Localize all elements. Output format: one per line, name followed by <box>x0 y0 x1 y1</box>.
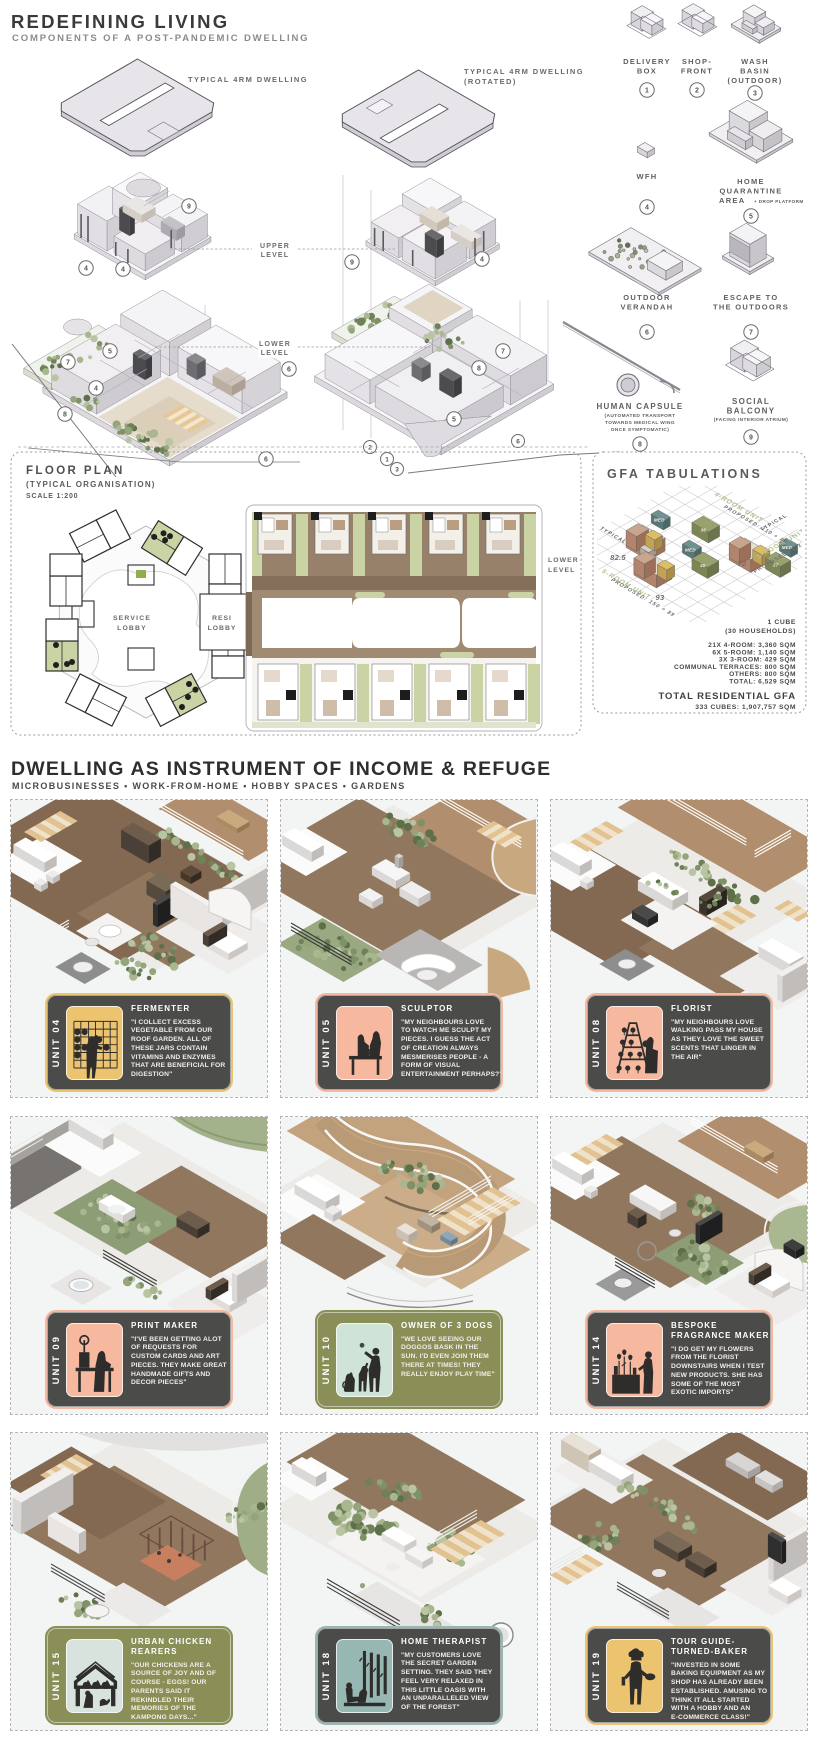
svg-text:TYPICAL 4RM DWELLING: TYPICAL 4RM DWELLING <box>464 67 584 76</box>
svg-text:(TYPICAL ORGANISATION): (TYPICAL ORGANISATION) <box>26 480 156 489</box>
svg-text:9: 9 <box>749 435 753 442</box>
svg-text:OUTDOOR: OUTDOOR <box>623 293 670 302</box>
svg-text:WASH: WASH <box>741 57 769 66</box>
svg-text:9: 9 <box>187 204 191 211</box>
svg-text:THE OUTDOORS: THE OUTDOORS <box>713 303 789 312</box>
svg-text:93: 93 <box>656 593 665 602</box>
svg-text:2: 2 <box>695 88 699 95</box>
svg-text:LEVEL: LEVEL <box>548 567 575 574</box>
svg-text:MED: MED <box>685 547 696 552</box>
svg-text:7: 7 <box>66 360 70 367</box>
svg-text:TYPICAL 4RM DWELLING: TYPICAL 4RM DWELLING <box>188 75 308 84</box>
svg-text:1: 1 <box>385 456 389 463</box>
svg-text:DELIVERY: DELIVERY <box>623 57 671 66</box>
svg-text:TOTAL RESIDENTIAL GFA: TOTAL RESIDENTIAL GFA <box>659 691 796 702</box>
svg-text:LOBBY: LOBBY <box>208 625 237 632</box>
svg-text:7: 7 <box>501 349 505 356</box>
svg-text:UPPER: UPPER <box>260 243 290 250</box>
svg-text:(OUTDOOR): (OUTDOOR) <box>727 76 782 85</box>
svg-text:BASIN: BASIN <box>740 67 770 76</box>
svg-text:(ROTATED): (ROTATED) <box>464 77 517 86</box>
svg-text:TOWARDS MEDICAL WING: TOWARDS MEDICAL WING <box>605 420 675 426</box>
svg-text:+ DROP PLATFORM: + DROP PLATFORM <box>754 199 804 204</box>
svg-text:7: 7 <box>749 330 753 337</box>
svg-text:1 CUBE: 1 CUBE <box>767 619 796 626</box>
svg-text:AREA: AREA <box>719 196 745 205</box>
svg-text:(AUTOMATED TRANSPORT: (AUTOMATED TRANSPORT <box>605 413 676 419</box>
svg-text:MED: MED <box>654 517 665 522</box>
svg-text:TOTAL: 6,529 SQM: TOTAL: 6,529 SQM <box>729 679 796 686</box>
svg-text:ESCAPE TO: ESCAPE TO <box>724 293 779 302</box>
svg-text:ONCE SYMPTOMATIC): ONCE SYMPTOMATIC) <box>611 427 670 433</box>
svg-text:8: 8 <box>63 412 67 419</box>
svg-text:5: 5 <box>452 417 456 424</box>
svg-text:FRONT: FRONT <box>681 67 713 76</box>
svg-text:8: 8 <box>477 366 481 373</box>
svg-text:5: 5 <box>749 214 753 221</box>
svg-text:72: 72 <box>738 559 747 568</box>
svg-text:FLOOR PLAN: FLOOR PLAN <box>26 465 125 477</box>
svg-text:QUARANTINE: QUARANTINE <box>720 187 783 196</box>
svg-text:36: 36 <box>701 527 707 532</box>
svg-text:WFH: WFH <box>637 172 658 181</box>
svg-text:4: 4 <box>94 386 98 393</box>
svg-text:3: 3 <box>395 466 399 473</box>
svg-text:SHOP-: SHOP- <box>682 57 712 66</box>
svg-text:BALCONY: BALCONY <box>727 407 776 416</box>
svg-text:6: 6 <box>645 330 649 337</box>
svg-text:6: 6 <box>287 367 291 374</box>
svg-text:(30 HOUSEHOLDS): (30 HOUSEHOLDS) <box>725 628 796 635</box>
svg-text:8: 8 <box>638 442 642 449</box>
svg-text:4: 4 <box>84 266 88 273</box>
svg-text:6: 6 <box>516 438 520 445</box>
svg-text:SERVICE: SERVICE <box>113 615 151 622</box>
svg-text:21X 4-ROOM: 3,360 SQM: 21X 4-ROOM: 3,360 SQM <box>708 642 796 649</box>
svg-text:1: 1 <box>645 88 649 95</box>
svg-text:4: 4 <box>121 267 125 274</box>
svg-text:RESI: RESI <box>212 615 232 622</box>
svg-text:333 CUBES: 1,907,757 SQM: 333 CUBES: 1,907,757 SQM <box>695 704 796 711</box>
svg-text:SOCIAL: SOCIAL <box>732 397 770 406</box>
svg-text:9: 9 <box>350 260 354 267</box>
svg-text:BOX: BOX <box>637 67 657 76</box>
svg-text:LOWER: LOWER <box>259 341 291 348</box>
svg-text:HUMAN CAPSULE: HUMAN CAPSULE <box>596 402 683 411</box>
svg-text:LEVEL: LEVEL <box>261 252 290 259</box>
svg-text:(FACING INTERIOR ATRIUM): (FACING INTERIOR ATRIUM) <box>714 417 789 423</box>
svg-text:4: 4 <box>645 205 649 212</box>
svg-text:3: 3 <box>753 91 757 98</box>
svg-text:COMMUNAL TERRACES: 800 SQM: COMMUNAL TERRACES: 800 SQM <box>674 664 796 671</box>
svg-text:4: 4 <box>480 257 484 264</box>
svg-text:45: 45 <box>699 563 706 568</box>
svg-text:SCALE 1:200: SCALE 1:200 <box>26 493 78 500</box>
svg-text:6: 6 <box>264 457 268 464</box>
svg-text:OTHERS: 800 SQM: OTHERS: 800 SQM <box>729 671 796 678</box>
svg-text:LEVEL: LEVEL <box>261 350 290 357</box>
svg-text:LOBBY: LOBBY <box>117 625 147 632</box>
svg-text:3X 3-ROOM: 429 SQM: 3X 3-ROOM: 429 SQM <box>719 657 796 664</box>
svg-text:6X 5-ROOM: 1,140 SQM: 6X 5-ROOM: 1,140 SQM <box>712 649 796 656</box>
svg-text:VERANDAH: VERANDAH <box>621 303 674 312</box>
svg-text:HOME: HOME <box>737 177 765 186</box>
svg-text:5: 5 <box>108 349 112 356</box>
svg-text:2: 2 <box>368 444 372 451</box>
svg-text:82.5: 82.5 <box>610 553 626 562</box>
svg-text:LOWER: LOWER <box>548 557 579 564</box>
svg-text:GFA TABULATIONS: GFA TABULATIONS <box>607 467 762 481</box>
